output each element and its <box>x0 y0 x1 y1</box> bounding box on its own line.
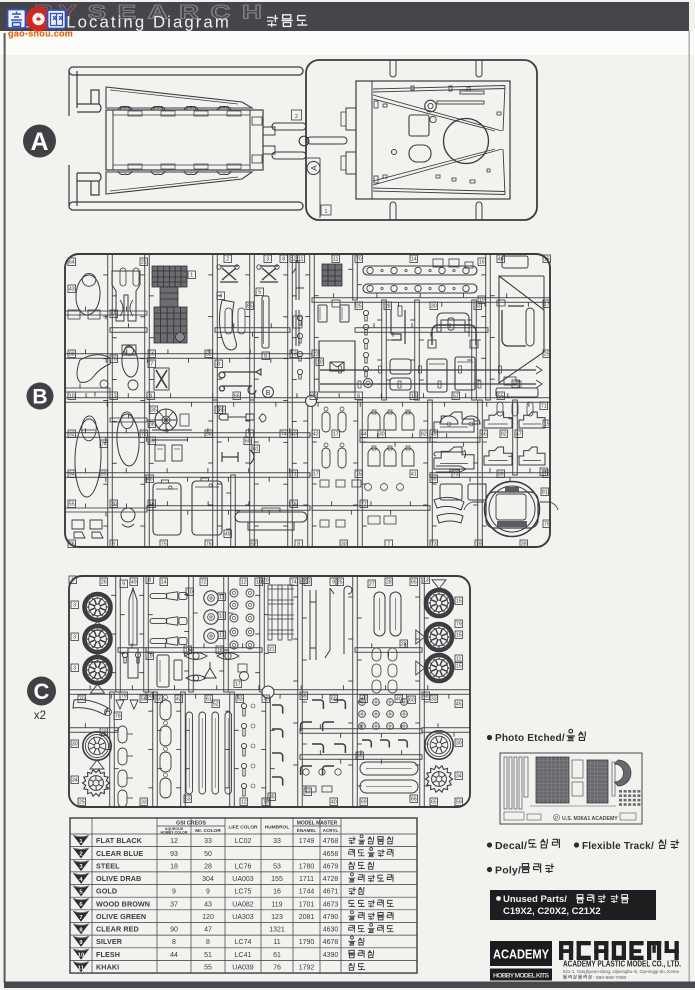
svg-text:: 080-969-7000: : 080-969-7000 <box>593 975 626 981</box>
svg-text:14: 14 <box>161 580 167 586</box>
svg-text:LC75: LC75 <box>235 889 252 896</box>
svg-text:5: 5 <box>258 290 261 296</box>
svg-text:41: 41 <box>411 472 417 478</box>
svg-text:90: 90 <box>170 927 178 934</box>
svg-text:Photo Etched/: Photo Etched/ <box>495 733 565 744</box>
svg-text:3: 3 <box>73 635 76 641</box>
svg-text:13: 13 <box>411 394 417 400</box>
svg-text:48: 48 <box>498 257 504 263</box>
svg-text:26: 26 <box>101 580 107 586</box>
svg-text:43: 43 <box>204 901 212 908</box>
svg-text:1744: 1744 <box>299 889 315 896</box>
svg-text:75: 75 <box>544 522 550 528</box>
svg-text:37: 37 <box>170 901 178 908</box>
svg-text:60: 60 <box>331 697 337 703</box>
svg-text:123: 123 <box>271 914 283 921</box>
svg-text:FLESH: FLESH <box>96 950 120 959</box>
svg-text:1749: 1749 <box>299 838 315 845</box>
svg-text:4671: 4671 <box>323 889 339 896</box>
svg-text:55: 55 <box>498 394 504 400</box>
svg-text:22: 22 <box>301 578 307 584</box>
svg-text:304: 304 <box>202 876 214 883</box>
svg-text:75: 75 <box>161 542 167 548</box>
svg-text:30: 30 <box>72 742 78 748</box>
svg-text:46: 46 <box>481 432 487 438</box>
svg-text:40: 40 <box>396 697 402 703</box>
svg-text:7: 7 <box>387 542 390 548</box>
svg-text:28: 28 <box>386 580 392 586</box>
svg-text:1: 1 <box>190 273 193 279</box>
svg-text:8: 8 <box>217 362 220 368</box>
svg-text:30: 30 <box>456 741 462 747</box>
svg-text:71: 71 <box>541 404 547 410</box>
svg-text:61: 61 <box>253 447 259 453</box>
svg-text:76: 76 <box>111 357 117 363</box>
svg-text:55: 55 <box>204 965 212 972</box>
svg-text:3: 3 <box>266 257 269 263</box>
svg-text:60: 60 <box>245 439 251 445</box>
svg-text:16: 16 <box>185 648 191 654</box>
svg-text:155: 155 <box>271 876 283 883</box>
svg-text:521-1, Yanghyeon-dong, Uijeong: 521-1, Yanghyeon-dong, Uijeongbu-si, Gye… <box>563 969 679 975</box>
svg-text:11: 11 <box>298 257 303 263</box>
svg-text:10: 10 <box>69 394 75 400</box>
svg-text:7: 7 <box>79 915 82 921</box>
svg-text:35: 35 <box>151 408 157 414</box>
svg-text:MODEL MASTER: MODEL MASTER <box>297 821 338 827</box>
svg-text:OLIVE GREEN: OLIVE GREEN <box>96 912 146 921</box>
svg-text:4630: 4630 <box>323 927 339 934</box>
svg-text:GSI CREOS: GSI CREOS <box>176 821 206 827</box>
svg-text:11: 11 <box>219 614 224 620</box>
svg-text:18: 18 <box>217 648 223 654</box>
svg-text:56: 56 <box>141 697 147 703</box>
svg-text:50: 50 <box>204 851 212 858</box>
svg-text:HOBBY MODEL KITS: HOBBY MODEL KITS <box>493 973 549 980</box>
svg-text:44: 44 <box>170 952 178 959</box>
svg-text:17: 17 <box>313 472 319 478</box>
svg-text:85: 85 <box>247 304 253 310</box>
svg-text:61: 61 <box>273 952 281 959</box>
svg-text:47: 47 <box>204 927 212 934</box>
svg-text:4390: 4390 <box>323 952 339 959</box>
svg-text:34: 34 <box>72 778 78 784</box>
svg-text:4728: 4728 <box>323 876 339 883</box>
svg-text:21: 21 <box>141 260 147 266</box>
svg-text:28: 28 <box>385 304 391 310</box>
svg-text:12: 12 <box>170 838 178 845</box>
svg-text:25: 25 <box>356 304 362 310</box>
svg-text:71: 71 <box>291 472 297 478</box>
svg-text:2081: 2081 <box>299 914 315 921</box>
svg-text:76: 76 <box>263 697 269 703</box>
svg-text:70: 70 <box>79 697 85 703</box>
svg-text:3: 3 <box>73 666 76 672</box>
svg-text:A: A <box>30 128 48 156</box>
svg-text:13: 13 <box>111 394 117 400</box>
svg-text:65: 65 <box>411 580 417 586</box>
svg-text:55: 55 <box>69 502 75 508</box>
svg-text:4658: 4658 <box>323 851 339 858</box>
svg-text:16: 16 <box>479 260 485 266</box>
svg-text:1701: 1701 <box>299 901 315 908</box>
svg-text:88: 88 <box>69 352 75 358</box>
svg-text:52: 52 <box>251 542 257 548</box>
svg-text:11: 11 <box>273 939 280 946</box>
svg-text:Flexible Track/: Flexible Track/ <box>582 841 654 852</box>
svg-text:B: B <box>266 390 271 397</box>
svg-text:79: 79 <box>456 622 462 628</box>
svg-text:13: 13 <box>423 578 429 584</box>
svg-text:9: 9 <box>172 889 176 896</box>
svg-text:52: 52 <box>213 702 219 708</box>
svg-text:73: 73 <box>431 542 437 548</box>
svg-text:30: 30 <box>341 542 347 548</box>
svg-text:13: 13 <box>291 352 297 358</box>
svg-text:34: 34 <box>456 774 462 780</box>
svg-text:74: 74 <box>291 580 297 586</box>
svg-text:A: A <box>309 165 319 171</box>
svg-text:11: 11 <box>78 965 85 971</box>
svg-text:65: 65 <box>431 800 437 806</box>
svg-text:KHAKI: KHAKI <box>96 963 119 972</box>
svg-text:64: 64 <box>69 260 75 266</box>
svg-text:49: 49 <box>225 532 231 538</box>
svg-text:59: 59 <box>456 800 462 806</box>
svg-text:38: 38 <box>149 422 155 428</box>
svg-text:STEEL: STEEL <box>96 861 120 870</box>
svg-text:gao-shou.com: gao-shou.com <box>8 29 73 39</box>
svg-text:LIFE COLOR: LIFE COLOR <box>228 825 258 831</box>
svg-text:OLIVE DRAB: OLIVE DRAB <box>96 874 141 883</box>
svg-text:9: 9 <box>332 580 335 586</box>
svg-text:3: 3 <box>73 603 76 609</box>
svg-text:30: 30 <box>379 432 385 438</box>
svg-text:76: 76 <box>544 472 550 478</box>
svg-text:94: 94 <box>69 472 75 478</box>
svg-text:1321: 1321 <box>269 927 285 934</box>
svg-text:15: 15 <box>544 257 550 263</box>
svg-text:8: 8 <box>297 542 300 548</box>
svg-text:9: 9 <box>149 394 152 400</box>
svg-text:x2: x2 <box>34 710 46 722</box>
svg-text:4: 4 <box>219 294 222 300</box>
svg-text:19: 19 <box>147 654 153 660</box>
svg-text:79: 79 <box>121 694 127 700</box>
svg-text:U.S. M36A1 ACADEMY: U.S. M36A1 ACADEMY <box>562 816 618 822</box>
svg-text:66: 66 <box>149 352 155 358</box>
svg-text:33: 33 <box>141 800 147 806</box>
svg-text:52: 52 <box>206 352 212 358</box>
svg-text:76: 76 <box>206 542 212 548</box>
svg-text:1711: 1711 <box>299 876 314 883</box>
svg-text:SILVER: SILVER <box>96 937 123 946</box>
svg-text:70: 70 <box>356 257 362 263</box>
svg-text:51: 51 <box>204 952 212 959</box>
svg-text:33: 33 <box>204 838 212 845</box>
svg-text:30: 30 <box>431 304 437 310</box>
svg-text:76: 76 <box>69 542 75 548</box>
svg-text:2: 2 <box>79 852 82 858</box>
svg-text:8: 8 <box>282 257 285 263</box>
svg-text:60: 60 <box>409 698 415 704</box>
svg-text:55: 55 <box>431 477 437 483</box>
svg-text:28: 28 <box>401 642 407 648</box>
svg-text:ACADEMY: ACADEMY <box>493 948 550 962</box>
svg-text:17: 17 <box>235 682 241 688</box>
svg-text:Mr. COLOR: Mr. COLOR <box>195 828 221 834</box>
svg-text:78: 78 <box>115 714 121 720</box>
svg-text:45: 45 <box>456 702 462 708</box>
svg-text:UA039: UA039 <box>232 965 254 972</box>
svg-text:15: 15 <box>456 633 462 639</box>
svg-text:45: 45 <box>431 432 437 438</box>
svg-text:82: 82 <box>501 432 507 438</box>
svg-text:8: 8 <box>148 578 151 584</box>
svg-text:14: 14 <box>411 257 417 263</box>
svg-text:55: 55 <box>301 694 307 700</box>
svg-text:73: 73 <box>453 472 459 478</box>
svg-text:HOBBY COLOR: HOBBY COLOR <box>161 830 188 834</box>
svg-text:33: 33 <box>431 697 437 703</box>
svg-text:89: 89 <box>498 472 504 478</box>
svg-text:Unused Parts/: Unused Parts/ <box>503 894 567 905</box>
svg-text:28: 28 <box>204 863 212 870</box>
svg-text:8: 8 <box>206 939 210 946</box>
svg-text:77: 77 <box>361 502 367 508</box>
svg-text:82: 82 <box>421 432 427 438</box>
svg-text:9: 9 <box>206 889 210 896</box>
svg-text:40: 40 <box>291 432 297 438</box>
svg-text:4678: 4678 <box>323 939 339 946</box>
svg-text:6: 6 <box>264 354 267 360</box>
svg-text:43: 43 <box>69 287 75 293</box>
svg-text:33: 33 <box>237 697 243 703</box>
svg-text:9: 9 <box>248 432 251 438</box>
svg-text:UA082: UA082 <box>232 901 254 908</box>
svg-text:6: 6 <box>357 394 360 400</box>
svg-text:4673: 4673 <box>323 901 339 908</box>
svg-text:11: 11 <box>219 633 224 639</box>
svg-text:48: 48 <box>361 697 367 703</box>
svg-text:65: 65 <box>357 754 363 760</box>
svg-text:72: 72 <box>201 580 207 586</box>
svg-text:74: 74 <box>101 442 107 448</box>
svg-text:12: 12 <box>291 257 297 263</box>
svg-text:74: 74 <box>281 432 287 438</box>
svg-text:11: 11 <box>456 657 461 663</box>
svg-text:66: 66 <box>234 394 240 400</box>
svg-text:120: 120 <box>202 914 214 921</box>
svg-text:LC76: LC76 <box>235 863 252 870</box>
svg-text:46: 46 <box>149 502 155 508</box>
svg-text:12: 12 <box>241 580 247 586</box>
svg-text:53: 53 <box>273 863 281 870</box>
svg-text:15: 15 <box>456 664 462 670</box>
svg-text:CLEAR RED: CLEAR RED <box>96 925 139 934</box>
svg-text:119: 119 <box>271 901 282 908</box>
svg-text:LC41: LC41 <box>235 952 252 959</box>
svg-text:ENAMEL: ENAMEL <box>297 828 317 833</box>
svg-text:25: 25 <box>79 800 85 806</box>
svg-text:C: C <box>34 679 50 704</box>
svg-text:22: 22 <box>313 352 319 358</box>
svg-text:GOLD: GOLD <box>96 887 117 896</box>
svg-text:25: 25 <box>544 352 550 358</box>
svg-text:72: 72 <box>141 432 147 438</box>
svg-text:10: 10 <box>256 580 262 586</box>
svg-text:29: 29 <box>311 394 317 400</box>
svg-text:HUMBROL: HUMBROL <box>265 825 290 831</box>
svg-text:10: 10 <box>187 590 193 596</box>
svg-text:19: 19 <box>476 542 482 548</box>
svg-text:4679: 4679 <box>323 863 339 870</box>
svg-text:53: 53 <box>185 797 191 803</box>
svg-text:16: 16 <box>273 889 281 896</box>
svg-text:66: 66 <box>411 797 417 803</box>
svg-text:9: 9 <box>122 582 125 588</box>
svg-text:27: 27 <box>369 582 375 588</box>
svg-text:LC02: LC02 <box>235 838 252 845</box>
svg-text:38: 38 <box>101 730 107 736</box>
svg-text:76: 76 <box>273 965 281 972</box>
svg-text:39: 39 <box>521 542 527 548</box>
svg-text:42: 42 <box>176 697 182 703</box>
svg-text:20: 20 <box>111 502 117 508</box>
svg-text:56: 56 <box>206 432 212 438</box>
svg-text:2: 2 <box>226 257 229 263</box>
svg-text:4790: 4790 <box>323 914 339 921</box>
svg-text:17: 17 <box>544 302 550 308</box>
svg-text:FLAT BLACK: FLAT BLACK <box>96 836 143 845</box>
svg-text:1: 1 <box>325 209 328 215</box>
svg-text:48: 48 <box>147 477 153 483</box>
svg-text:61: 61 <box>206 697 212 703</box>
svg-text:7: 7 <box>150 362 153 368</box>
svg-text:81: 81 <box>542 490 548 496</box>
svg-text:33: 33 <box>475 304 481 310</box>
svg-text:76: 76 <box>291 502 297 508</box>
svg-text:UA003: UA003 <box>232 876 254 883</box>
svg-text:11: 11 <box>333 257 338 263</box>
svg-text:15: 15 <box>456 599 462 605</box>
svg-text:42: 42 <box>313 432 319 438</box>
svg-text:9: 9 <box>112 542 115 548</box>
svg-text:75: 75 <box>263 800 269 806</box>
svg-text:57: 57 <box>513 382 519 388</box>
svg-text:8: 8 <box>172 939 176 946</box>
svg-text:57: 57 <box>453 394 459 400</box>
svg-text:49: 49 <box>131 580 137 586</box>
svg-text:93: 93 <box>170 851 178 858</box>
svg-text:44: 44 <box>361 432 367 438</box>
svg-text:UA303: UA303 <box>232 914 254 921</box>
svg-text:CLEAR BLUE: CLEAR BLUE <box>96 849 143 858</box>
svg-text:2: 2 <box>295 114 298 120</box>
svg-text:69: 69 <box>361 800 367 806</box>
svg-text:10: 10 <box>78 953 84 959</box>
svg-text:B: B <box>32 386 47 409</box>
svg-text:18: 18 <box>170 863 178 870</box>
svg-text:C19X2, C20X2, C21X2: C19X2, C20X2, C21X2 <box>503 906 601 917</box>
svg-text:36: 36 <box>219 408 225 414</box>
svg-text:58: 58 <box>423 694 429 700</box>
svg-text:1780: 1780 <box>299 863 315 870</box>
svg-text:33: 33 <box>273 838 281 845</box>
svg-text:15: 15 <box>544 422 550 428</box>
svg-text:11: 11 <box>219 595 224 601</box>
svg-text:1792: 1792 <box>299 965 315 972</box>
svg-text:17: 17 <box>333 432 339 438</box>
svg-text:ACRYL: ACRYL <box>323 828 339 833</box>
svg-text:75: 75 <box>356 472 362 478</box>
svg-text:32: 32 <box>69 432 75 438</box>
svg-text:Decal/: Decal/ <box>495 840 527 852</box>
svg-text:1790: 1790 <box>299 939 315 946</box>
svg-text:95: 95 <box>101 472 107 478</box>
svg-text:10: 10 <box>317 360 323 366</box>
svg-text:WOOD BROWN: WOOD BROWN <box>96 899 150 908</box>
svg-text:LC74: LC74 <box>235 939 252 946</box>
svg-text:20: 20 <box>263 578 269 584</box>
svg-text:ACADEMY PLASTIC MODEL CO., LTD: ACADEMY PLASTIC MODEL CO., LTD. <box>563 960 681 969</box>
svg-text:Poly/: Poly/ <box>495 865 521 877</box>
svg-text:47: 47 <box>516 432 522 438</box>
svg-text:1: 1 <box>71 578 74 584</box>
svg-text:50: 50 <box>156 697 162 703</box>
svg-text:4768: 4768 <box>323 838 339 845</box>
svg-text:40: 40 <box>331 800 337 806</box>
svg-text:12: 12 <box>241 800 247 806</box>
svg-text:21: 21 <box>269 647 275 653</box>
